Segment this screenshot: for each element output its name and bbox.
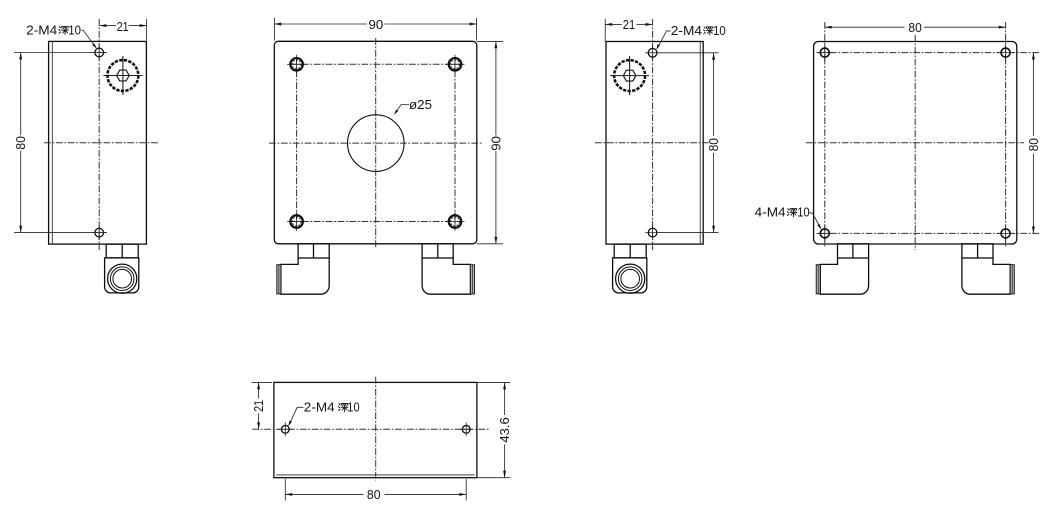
svg-text:10: 10 bbox=[68, 22, 81, 37]
svg-text:80: 80 bbox=[908, 20, 921, 35]
svg-text:80: 80 bbox=[706, 138, 721, 151]
svg-text:10: 10 bbox=[347, 400, 359, 415]
svg-text:80: 80 bbox=[13, 136, 28, 150]
svg-text:90: 90 bbox=[488, 136, 503, 151]
svg-text:ø25: ø25 bbox=[409, 98, 432, 112]
svg-text:10: 10 bbox=[797, 205, 810, 220]
svg-text:80: 80 bbox=[367, 487, 381, 502]
svg-text:10: 10 bbox=[713, 23, 726, 38]
svg-text:4-M4: 4-M4 bbox=[755, 205, 786, 220]
svg-text:43.6: 43.6 bbox=[497, 417, 512, 442]
svg-text:90: 90 bbox=[369, 17, 384, 32]
svg-text:80: 80 bbox=[1026, 138, 1041, 151]
svg-text:21: 21 bbox=[623, 17, 635, 32]
svg-text:21: 21 bbox=[251, 400, 266, 412]
svg-text:21: 21 bbox=[117, 19, 129, 34]
svg-text:2-M4: 2-M4 bbox=[304, 400, 335, 415]
svg-text:2-M4: 2-M4 bbox=[671, 23, 702, 38]
svg-text:2-M4: 2-M4 bbox=[26, 22, 57, 37]
